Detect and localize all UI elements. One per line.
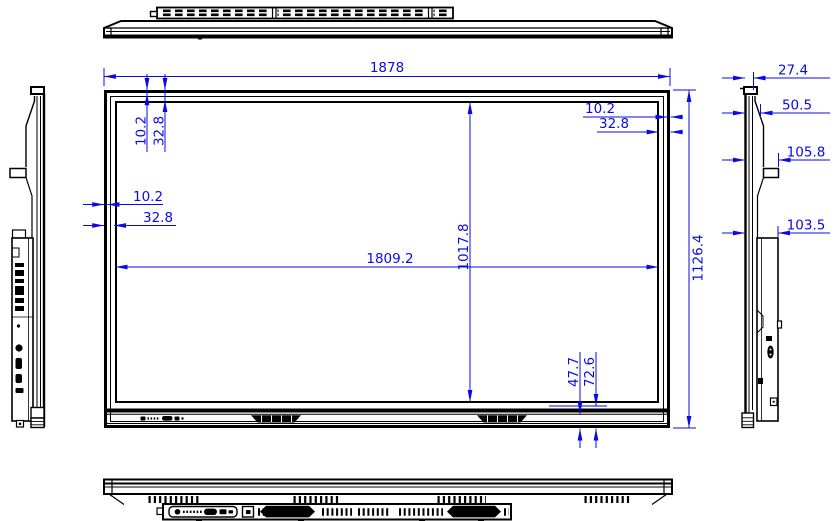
left-side-view (10, 87, 44, 428)
top-vent-strip (157, 8, 453, 19)
dim-label-overall-height: 1126.4 (691, 234, 707, 281)
dim-label-active-width: 1809.2 (366, 251, 413, 267)
dim-label-bezel-top-outer: 10.2 (134, 116, 150, 146)
dim-side-body-depth: 103.5 (722, 218, 830, 238)
bottom-view (104, 480, 672, 521)
dim-side-front-depth: 50.5 (722, 98, 830, 120)
dim-label-bracket-depth: 105.8 (787, 145, 826, 161)
dim-label-bezel-bottom-outer: 72.6 (582, 357, 598, 387)
dim-label-bezel-top-inner: 32.8 (152, 116, 168, 146)
dim-overall-width: 1878 (104, 60, 670, 86)
left-top-cap (31, 87, 44, 94)
dim-side-bracket-depth: 105.8 (722, 145, 830, 168)
dim-label-bezel-bottom-inner: 47.7 (566, 357, 582, 387)
right-side-view (740, 87, 782, 428)
top-view (104, 8, 672, 40)
dim-label-panel-thickness: 27.4 (778, 63, 808, 79)
right-mount-bracket (764, 169, 779, 178)
dimension-drawing-page: 1878 1126.4 1809.2 1017.8 10.2 (0, 0, 840, 521)
bottom-speaker-right (447, 506, 501, 518)
dim-label-active-height: 1017.8 (456, 223, 472, 270)
dim-label-bezel-right-inner: 32.8 (599, 116, 629, 132)
dim-label-bezel-left-inner: 32.8 (143, 210, 173, 226)
bottom-speaker-left (260, 506, 315, 518)
drawing-canvas: 1878 1126.4 1809.2 1017.8 10.2 (0, 0, 840, 521)
right-power-inlet (767, 346, 773, 359)
left-mount-bracket (10, 169, 26, 178)
top-vent-tab (151, 12, 158, 17)
dim-label-front-depth: 50.5 (782, 98, 812, 114)
dim-overall-height: 1126.4 (673, 90, 707, 428)
front-speaker-right (477, 415, 527, 422)
right-foot (742, 413, 754, 428)
dim-label-bezel-left-outer: 10.2 (133, 189, 163, 205)
right-top-cap (744, 87, 757, 94)
dim-side-panel-thickness: 27.4 (722, 63, 830, 91)
dim-label-bezel-right-outer: 10.2 (585, 101, 615, 117)
left-foot (31, 408, 44, 419)
front-speaker-left (251, 415, 301, 422)
dim-label-body-depth: 103.5 (787, 218, 826, 234)
dim-label-overall-width: 1878 (370, 60, 404, 76)
